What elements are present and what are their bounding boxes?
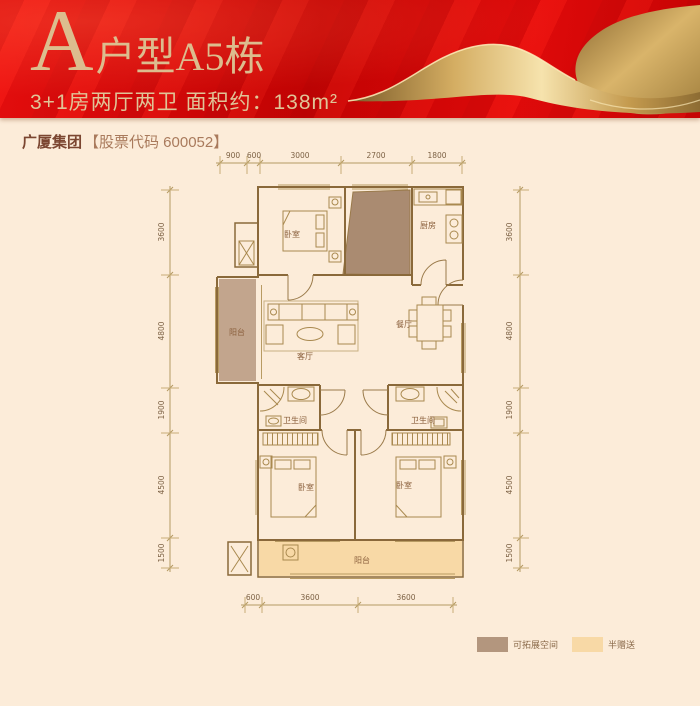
legend: 可拓展空间 半赠送 xyxy=(477,637,635,652)
windows xyxy=(216,185,466,579)
room-label-dining: 餐厅 xyxy=(396,320,412,329)
room-label-bedroom-top: 卧室 xyxy=(284,229,300,239)
room-label-living: 客厅 xyxy=(297,351,313,361)
title-line: A 户型A5栋 xyxy=(30,0,338,84)
room-label-bath-right: 卫生间 xyxy=(411,415,435,425)
page-subtitle: 3+1房两厅两卫 面积约：138m² xyxy=(30,86,338,116)
sofa-group xyxy=(264,301,358,351)
half-gift-swatch xyxy=(572,637,603,652)
dim-right-3: 4500 xyxy=(505,475,514,494)
dim-bottom-1: 3600 xyxy=(300,593,319,602)
dim-right-0: 3600 xyxy=(505,222,514,241)
kitchen-fixtures xyxy=(414,189,462,243)
page: A 户型A5栋 3+1房两厅两卫 面积约：138m² 广厦集团【股票代码 600… xyxy=(0,0,700,706)
room-label-bedroom-left: 卧室 xyxy=(298,482,314,492)
dimension-labels: 900 600 3000 2700 1800 3600 4800 1900 45… xyxy=(157,151,514,602)
legend-item-half-gift: 半赠送 xyxy=(572,637,635,652)
room-label-balcony-left: 阳台 xyxy=(229,327,245,337)
dim-left-0: 3600 xyxy=(157,222,166,241)
dim-left-3: 4500 xyxy=(157,475,166,494)
wardrobe-right xyxy=(392,433,450,445)
gold-ribbon-graphic xyxy=(340,0,700,118)
room-label-kitchen: 厨房 xyxy=(420,220,436,230)
room-label-bedroom-right: 卧室 xyxy=(396,480,412,490)
room-label-balcony-bottom: 阳台 xyxy=(354,555,370,565)
dim-top-2: 3000 xyxy=(290,151,309,160)
dim-bottom-0: 600 xyxy=(246,593,261,602)
legend-label-expandable: 可拓展空间 xyxy=(513,638,558,651)
page-title: 户型A5栋 xyxy=(96,24,265,82)
dim-left-2: 1900 xyxy=(157,400,166,419)
dim-top-0: 900 xyxy=(226,151,241,160)
dim-left-4: 1500 xyxy=(157,543,166,562)
company-name: 广厦集团 xyxy=(22,134,82,151)
dim-right-2: 1900 xyxy=(505,400,514,419)
legend-item-expandable: 可拓展空间 xyxy=(477,637,558,652)
page-title-letter: A xyxy=(30,0,94,84)
dim-top-1: 600 xyxy=(247,151,262,160)
dim-top-3: 2700 xyxy=(366,151,385,160)
dim-bottom-2: 3600 xyxy=(396,593,415,602)
wardrobe-left xyxy=(263,433,318,445)
dim-right-4: 1500 xyxy=(505,543,514,562)
floor-plan: 卧室 厨房 阳台 客厅 餐厅 卫生间 卫生间 卧室 卧室 阳台 xyxy=(140,135,570,645)
dim-right-1: 4800 xyxy=(505,321,514,340)
room-label-bath-left: 卫生间 xyxy=(283,415,307,425)
dim-left-1: 4800 xyxy=(157,321,166,340)
banner: A 户型A5栋 3+1房两厅两卫 面积约：138m² xyxy=(0,0,700,118)
expandable-space-shade xyxy=(343,190,410,275)
legend-label-half-gift: 半赠送 xyxy=(608,638,635,651)
dim-top-4: 1800 xyxy=(427,151,446,160)
expandable-space-swatch xyxy=(477,637,508,652)
banner-text: A 户型A5栋 3+1房两厅两卫 面积约：138m² xyxy=(30,0,338,116)
